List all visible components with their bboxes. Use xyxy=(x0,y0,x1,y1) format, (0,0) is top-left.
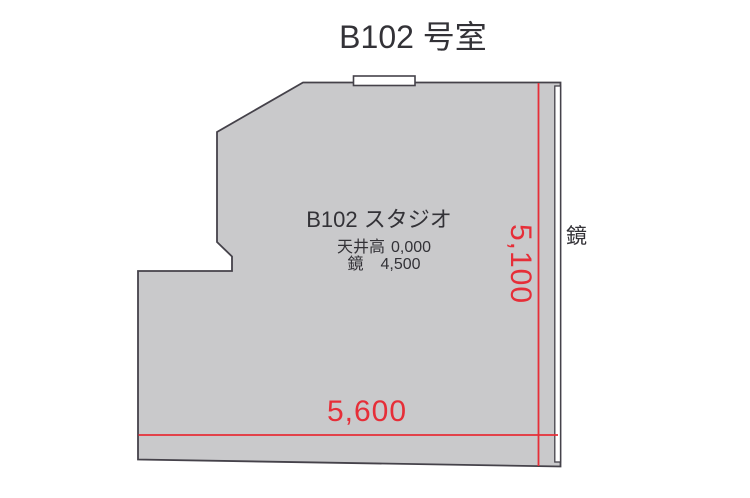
mirror-width-spec: 鏡 4,500 xyxy=(347,256,420,273)
mirror-wall-label: 鏡 xyxy=(566,226,587,248)
ceiling-height-value: 0,000 xyxy=(391,239,431,256)
room-specs: 天井高 0,000 鏡 4,500 xyxy=(337,239,431,273)
mirror-strip xyxy=(555,86,561,462)
width-dimension-value: 5,600 xyxy=(327,397,407,427)
entrance-door xyxy=(354,76,416,86)
ceiling-height-spec: 天井高 0,000 xyxy=(337,239,431,256)
mirror-spec-label: 鏡 xyxy=(347,256,363,273)
floor-plan-page: B102 号室 B102 スタジオ 天井高 0,000 鏡 4,500 5,60… xyxy=(0,0,750,498)
ceiling-height-label: 天井高 xyxy=(337,239,385,256)
page-title: B102 号室 xyxy=(339,20,487,54)
mirror-spec-value: 4,500 xyxy=(380,256,420,273)
height-dimension-value: 5,100 xyxy=(505,224,535,304)
room-name-label: B102 スタジオ xyxy=(306,208,452,232)
